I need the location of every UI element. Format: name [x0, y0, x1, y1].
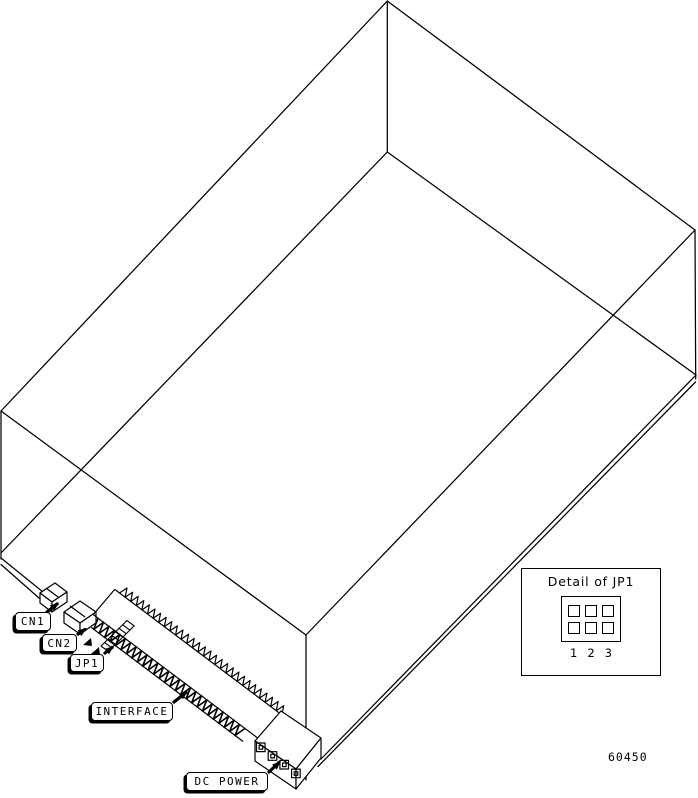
callout-jp1-label: JP1 — [75, 657, 99, 670]
edge-right-vertical — [695, 230, 696, 379]
jumper-pin-square — [568, 622, 580, 634]
jumper-pin-square — [602, 622, 614, 634]
callout-cn2-label: CN2 — [47, 637, 71, 650]
edge-bottom-right-rim-outer — [321, 375, 696, 759]
jp1-pin-marks — [83, 638, 100, 655]
edge-top-right — [387, 1, 695, 230]
jp1-detail-jumper-block — [561, 596, 621, 642]
callout-dc-power: DC POWER — [186, 772, 268, 791]
edge-bottom-left-rim-inner — [1, 565, 39, 599]
callout-interface-label: INTERFACE — [95, 705, 168, 718]
callout-cn2: CN2 — [42, 634, 77, 652]
jp1-pin-number-2: 2 — [587, 646, 594, 660]
jumper-pin-square — [568, 605, 580, 617]
callout-cn1: CN1 — [15, 612, 51, 631]
jp1-pin-numbers: 1 2 3 — [561, 646, 621, 660]
edge-rear-bottom-right — [387, 152, 696, 375]
drive-line-art — [0, 0, 698, 798]
callout-cn1-label: CN1 — [21, 615, 45, 628]
edge-rear-bottom-left — [1, 152, 387, 553]
callout-dc-power-label: DC POWER — [195, 775, 260, 788]
interface-connector — [86, 581, 290, 752]
jp1-detail-panel: Detail of JP1 1 2 3 — [521, 568, 661, 676]
callout-jp1: JP1 — [70, 654, 104, 672]
callout-interface: INTERFACE — [91, 702, 173, 721]
interface-pin-row-near-base — [91, 627, 243, 741]
jp1-pin-number-1: 1 — [570, 646, 577, 660]
figure-part-number: 60450 — [608, 750, 648, 764]
jumper-pin-square — [602, 605, 614, 617]
jumper-pin-square — [585, 622, 597, 634]
figure-canvas: CN1 CN2 JP1 INTERFACE DC POWER Detail of… — [0, 0, 698, 798]
jp1-detail-title: Detail of JP1 — [522, 574, 660, 589]
edge-bottom-left-rim-outer — [1, 558, 43, 592]
jp1-pin-number-3: 3 — [605, 646, 612, 660]
edge-top-left — [1, 1, 387, 411]
interface-pin-row-far — [119, 586, 286, 715]
cn2-connector — [64, 601, 96, 634]
jumper-pin-square — [585, 605, 597, 617]
